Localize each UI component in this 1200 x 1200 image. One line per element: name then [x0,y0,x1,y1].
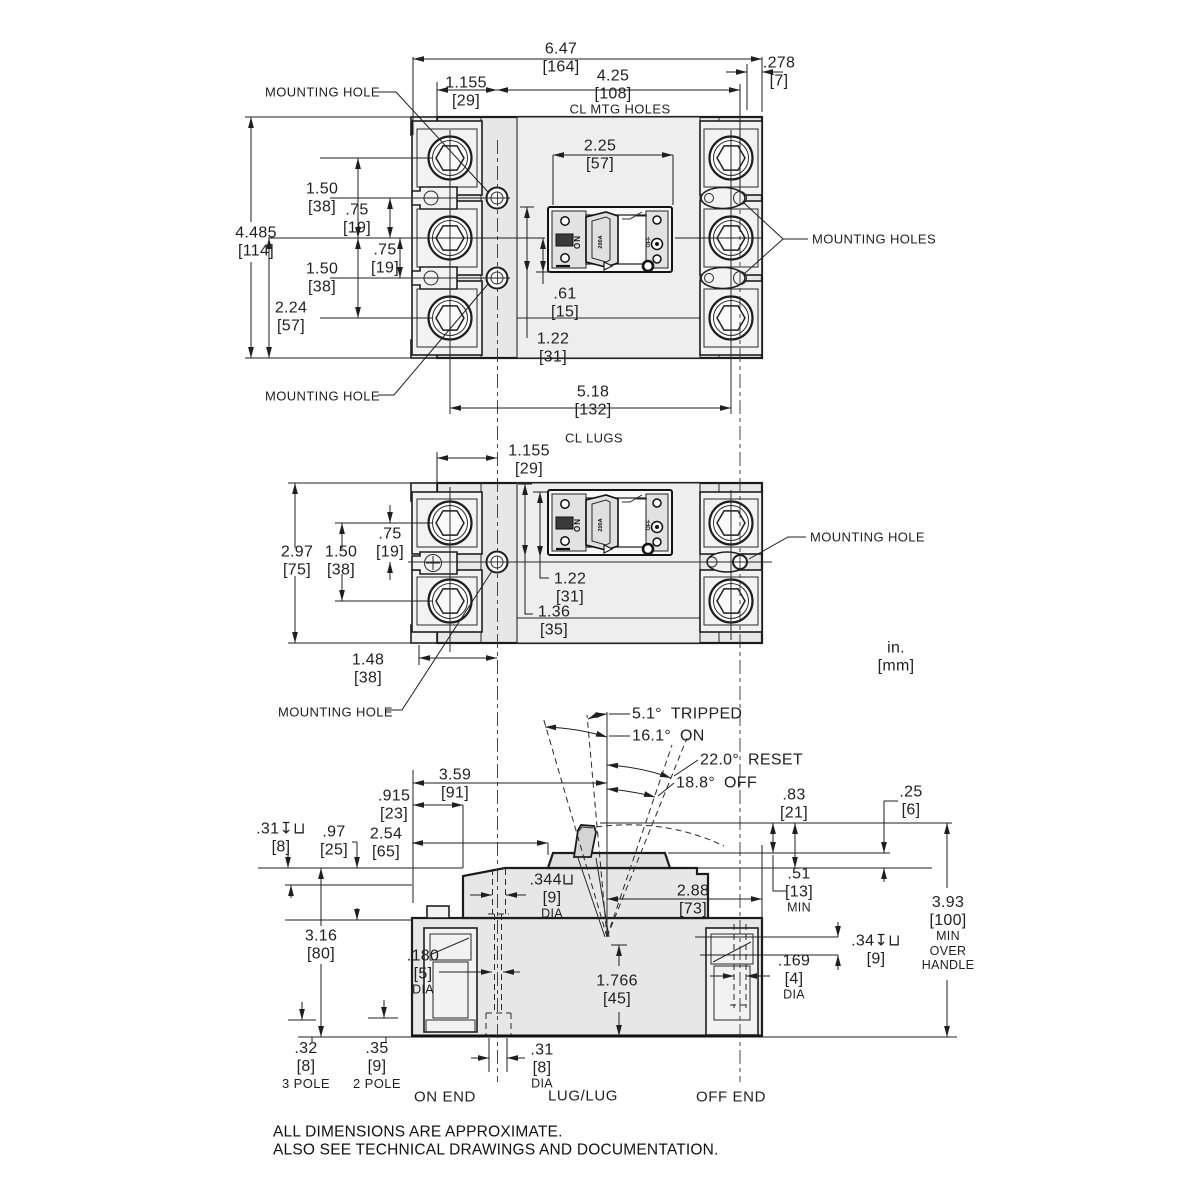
dim-3p-pole-pitch-lower: 1.50[38] [306,261,338,296]
dim-3p-right-edge-offset: .278[7] [763,55,795,90]
angle-off: 18.8°OFF [676,774,757,792]
note-cl-lugs: CL LUGS [565,429,623,447]
dim-2p-pole-pitch: 1.50[38] [325,544,357,579]
callout-mounting-hole-mid-right: MOUNTING HOLE [810,528,925,546]
label-lug-lug: LUG/LUG [548,1087,618,1105]
dim-2p-edge-to-mtg-hole: 1.48[38] [352,652,384,687]
dim-sv-mtg-hole-dia: .344⊔[9]DIA [529,871,574,921]
dim-3p-cutout-height: 1.22[31] [537,331,569,366]
dim-3p-hole-below-cl: .75[19] [371,242,399,277]
dim-sv-handle-height: .83[21] [780,787,808,822]
push-to-trip-button [643,544,653,554]
dim-sv-foot-2pole: .35[9]2 POLE [353,1040,401,1093]
dim-sv-recess-depth: .31↧⊔[8] [256,821,306,856]
units-note: in.[mm] [878,640,915,675]
callout-mounting-hole-top-left: MOUNTING HOLE [265,83,380,101]
rating-label: 200A [598,518,604,531]
dim-sv-base-height: 1.766[45] [596,973,638,1008]
dim-sv-foot-3pole: .32[8]3 POLE [282,1040,330,1093]
rating-label: 200A [598,235,604,248]
dim-sv-body-height: 3.16[80] [305,928,337,963]
dim-sv-handle-cl-to-edge: 2.88[73] [677,883,709,918]
switch-off-label: OFF [646,519,652,531]
label-on-end: ON END [414,1088,476,1106]
dim-sv-bottom-hole-dia: .31[8]DIA [530,1041,553,1091]
callout-mounting-holes-right: MOUNTING HOLES [812,230,936,248]
dim-sv-mtg-hole-depth: .34↧⊔[9] [851,933,901,968]
dim-sv-wire-hole-dia: .180[5]DIA [407,947,439,997]
dim-2p-cutout-height: 1.22[31] [554,571,586,606]
label-off-end: OFF END [696,1088,766,1106]
dim-3p-mtg-hole-offset: 1.155[29] [445,75,487,110]
dim-sv-edge-to-step: .915[23] [378,788,410,823]
breaker-face: ON200AOFF [548,490,672,555]
callout-mounting-hole-bottom-left: MOUNTING HOLE [265,387,380,405]
dim-3p-cl-to-bottom: 2.24[57] [275,300,307,335]
dim-sv-edge-to-pedestal: 2.54[65] [370,826,402,861]
callout-mounting-hole-mid-bottom: MOUNTING HOLE [278,703,393,721]
dim-2p-hole-below-cl: .75[19] [376,526,404,561]
drawing-root: ON200AOFFON200AOFF [0,0,1200,1200]
dim-2p-top-to-cutout-bottom: 1.36[35] [538,604,570,639]
dim-3p-overall-height: 4.485[114] [235,225,277,260]
note-line-1: ALL DIMENSIONS ARE APPROXIMATE. [273,1123,563,1141]
angle-tripped: 5.1°TRIPPED [632,705,742,723]
dim-sv-edge-to-handle-cl: 3.59[91] [439,767,471,802]
dim-sv-min-over-handle: 3.93[100]MINOVERHANDLE [922,894,975,973]
dim-3p-pole-pitch-upper: 1.50[38] [306,181,338,216]
dim-3p-mtg-hole-span: 4.25[108] [594,68,631,103]
breaker-face: ON200AOFF [548,207,672,272]
drawing-canvas: ON200AOFFON200AOFF [0,0,1200,1200]
dim-3p-overall-width: 6.47[164] [542,41,579,76]
note-line-2: ALSO SEE TECHNICAL DRAWINGS AND DOCUMENT… [273,1141,719,1159]
switch-off-label: OFF [646,236,652,248]
angle-on: 16.1°ON [632,727,705,745]
push-to-trip-button [643,261,653,271]
angle-reset: 22.0°RESET [700,751,803,769]
dim-2p-mtg-hole-offset: 1.155[29] [508,443,550,478]
switch-on-label: ON [573,235,582,249]
dim-3p-lug-cl-span: 5.18[132] [574,384,611,419]
dim-sv-off-hole-dia: .169[4]DIA [778,952,810,1002]
dim-sv-pedestal-height: .25[6] [899,784,922,819]
dim-3p-handle-cutout-width: 2.25[57] [584,138,616,173]
dim-2p-overall-height: 2.97[75] [281,544,313,579]
dim-3p-hole-above-cl: .75[19] [343,202,371,237]
dim-sv-handle-clearance: .51[13]MIN [785,865,813,915]
dim-3p-cutout-half-height: .61[15] [551,286,579,321]
note-cl-mtg-holes: CL MTG HOLES [569,100,670,118]
switch-on-label: ON [573,518,582,532]
dim-sv-cover-depth: .97[25] [320,824,348,859]
